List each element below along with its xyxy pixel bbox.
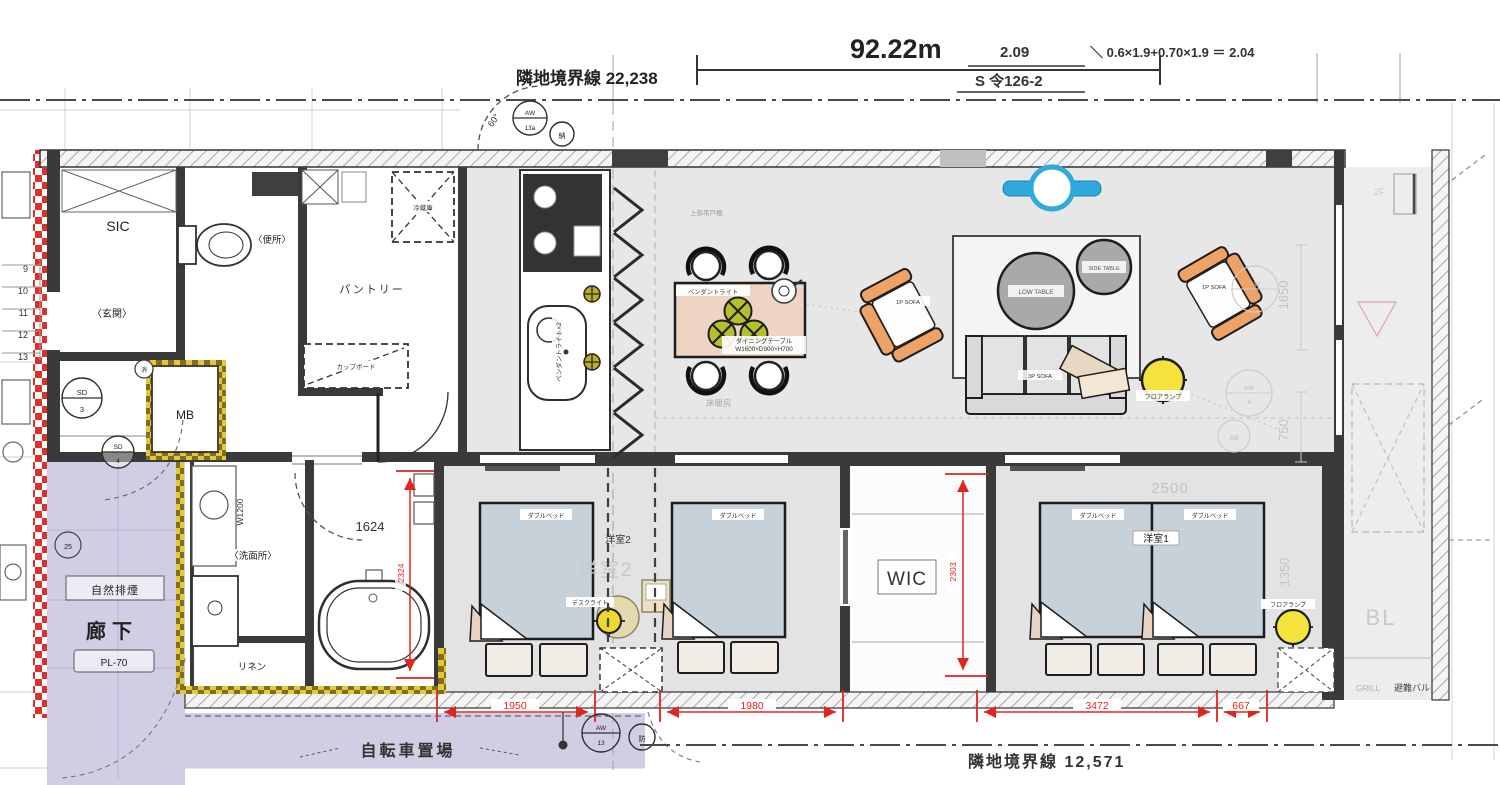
stair-num: 13 <box>18 352 28 362</box>
bed-label: ダブルベッド <box>527 512 564 520</box>
floor-plan-drawing: 隣地境界線 22,238 92.22m 2.09 ＼ 0.6×1.9+0.70×… <box>0 0 1500 785</box>
marker-aw13: AW <box>525 110 536 117</box>
stair-num: 10 <box>18 286 28 296</box>
bicycle-label: 自転車置場 <box>360 741 455 760</box>
boundary-bottom-label: 隣地境界線 12,571 <box>968 752 1125 771</box>
bedroom1-label: 洋室1 <box>1143 532 1169 545</box>
stair-num: 9 <box>23 264 28 274</box>
marker-sd3: SD <box>77 388 88 397</box>
balcony-label: BL <box>1366 605 1397 630</box>
floor-lamp-label: フロアランプ <box>1270 602 1306 609</box>
bed-3: ダブルベッド <box>1030 503 1152 675</box>
smoke-vent-label: 自然排煙 <box>91 583 139 597</box>
cupboard-label: カップボード <box>337 363 376 371</box>
side-table-label: SIDE TABLE <box>1088 266 1120 272</box>
calc-value: 2.09 <box>1000 44 1029 61</box>
marker-sd4-num: 4 <box>116 458 120 465</box>
bedroom2-ghost-label: 洋室2 <box>579 559 634 581</box>
dining-table-size: W1600×D900×H700 <box>735 346 793 353</box>
kettle <box>772 279 796 303</box>
boundary-top-label: 隣地境界線 22,238 <box>516 68 658 88</box>
dim-1650: 1650 <box>1276 281 1291 310</box>
bedroom2-label: 洋室2 <box>605 533 631 546</box>
bed-label: ダブルベッド <box>719 512 756 520</box>
linen-label: リネン <box>238 662 267 673</box>
washer <box>192 576 238 646</box>
toilet-label: 〈便所〉 <box>253 234 291 246</box>
sofa-3p: 3P SOFA <box>966 336 1129 414</box>
calc-ref: S 令126-2 <box>975 72 1043 90</box>
floor-plan-page: 隣地境界線 22,238 92.22m 2.09 ＼ 0.6×1.9+0.70×… <box>0 0 1500 785</box>
grill-label: GRILL <box>1356 683 1381 693</box>
top-window-markers: 60° AW 13a 納 <box>478 86 574 150</box>
marker-sd4: SD <box>113 444 122 451</box>
fridge-label: 冷蔵庫 <box>413 203 433 212</box>
dim-2500: 2500 <box>1151 480 1188 497</box>
desk-light-label: デスクライト <box>572 599 608 607</box>
pantry-label: パントリー <box>339 283 405 296</box>
entrance-label: 〈玄関〉 <box>92 307 132 320</box>
pl70-label: PL-70 <box>101 658 128 669</box>
sofa1p-label: 1P SOFA <box>1202 285 1226 291</box>
pendant-dot-2 <box>584 354 600 370</box>
balcony-2f-label: 2F <box>1374 187 1385 197</box>
sic-label: SIC <box>106 218 129 234</box>
wic-label: WIC <box>887 569 927 590</box>
upper-cabinet-label: 上部吊戸棚 <box>690 208 723 217</box>
span-top-label: 92.22m <box>850 34 942 64</box>
marker-25: 25 <box>64 544 72 551</box>
dim-1350: 1350 <box>1277 558 1292 587</box>
toilet-tank <box>178 226 196 264</box>
sofa1p-label: 1P SOFA <box>896 300 920 306</box>
bath-size-label: 1624 <box>356 519 385 534</box>
marker-ab: AB <box>1229 435 1239 442</box>
mb-label: MB <box>176 408 194 422</box>
arc-angle-label: 60° <box>486 112 502 129</box>
bed-4: ダブルベッド <box>1142 503 1264 675</box>
washer-width-label: W1200 <box>235 498 245 525</box>
neighbor-fixtures <box>0 172 30 600</box>
stove <box>523 174 602 272</box>
sofa3p-label: 3P SOFA <box>1028 374 1052 380</box>
low-table-label: LOW TABLE <box>1019 289 1054 296</box>
marker-aw13-num: 13a <box>525 125 536 132</box>
bed-1: ダブルベッド <box>470 503 593 676</box>
dim-1980: 1980 <box>740 700 764 712</box>
corridor-label: 廊下 <box>86 619 138 643</box>
stair-num: 12 <box>18 330 28 340</box>
washroom-label: 〈洗面所〉 <box>229 550 277 562</box>
bedroom3: ダブルベッド <box>662 503 785 673</box>
bed-label: ダブルベッド <box>1079 512 1116 520</box>
marker-nou: 納 <box>559 131 566 140</box>
marker-aw13b: AW <box>596 725 607 732</box>
site-boundary-top: 隣地境界線 22,238 92.22m 2.09 ＼ 0.6×1.9+0.70×… <box>0 34 1500 100</box>
stair-num: 11 <box>19 308 28 318</box>
evac-label: 避難バル <box>1394 682 1430 693</box>
marker-shou: 消 <box>141 366 147 374</box>
marker-aw1: AW <box>1250 281 1261 288</box>
bed-label: ダブルベッド <box>1191 512 1228 520</box>
pendant-dot-1 <box>584 286 600 302</box>
dim-667: 667 <box>1232 700 1250 712</box>
marker-aw1-num: 1 <box>1253 295 1257 302</box>
pendant-light-label: ペンダントライト <box>688 287 738 296</box>
marker-aw13b-num: 13 <box>597 740 605 747</box>
marker-bou: 防 <box>639 734 646 743</box>
bed-2: ダブルベッド <box>662 503 785 673</box>
dim-2324: 2324 <box>396 563 406 582</box>
dining-table-label: ダイニングテーブル <box>736 336 792 345</box>
marker-aw4: AW <box>1244 385 1255 392</box>
dim-3472: 3472 <box>1085 700 1109 712</box>
pendant-x2-label: ペンダントライト×2 <box>554 322 563 382</box>
red-boundary-strip <box>33 150 47 718</box>
dim-750: 750 <box>1276 419 1291 441</box>
floor-lamp-label: フロアランプ <box>1145 394 1183 401</box>
calc-formula: ＼ 0.6×1.9+0.70×1.9 ＝ 2.04 <box>1090 45 1255 60</box>
common-corridor-floor <box>47 453 185 785</box>
floor-heating-label: 床暖房 <box>706 398 732 408</box>
meter-box: MB <box>152 366 218 452</box>
dim-1950: 1950 <box>503 700 527 712</box>
marker-aw4-num: 4 <box>1247 399 1251 406</box>
living-set: LOW TABLE SIDE TABLE 3P SOFA <box>953 236 1140 414</box>
marker-sd3-num: 3 <box>80 405 84 414</box>
dim-2303: 2303 <box>948 562 958 581</box>
